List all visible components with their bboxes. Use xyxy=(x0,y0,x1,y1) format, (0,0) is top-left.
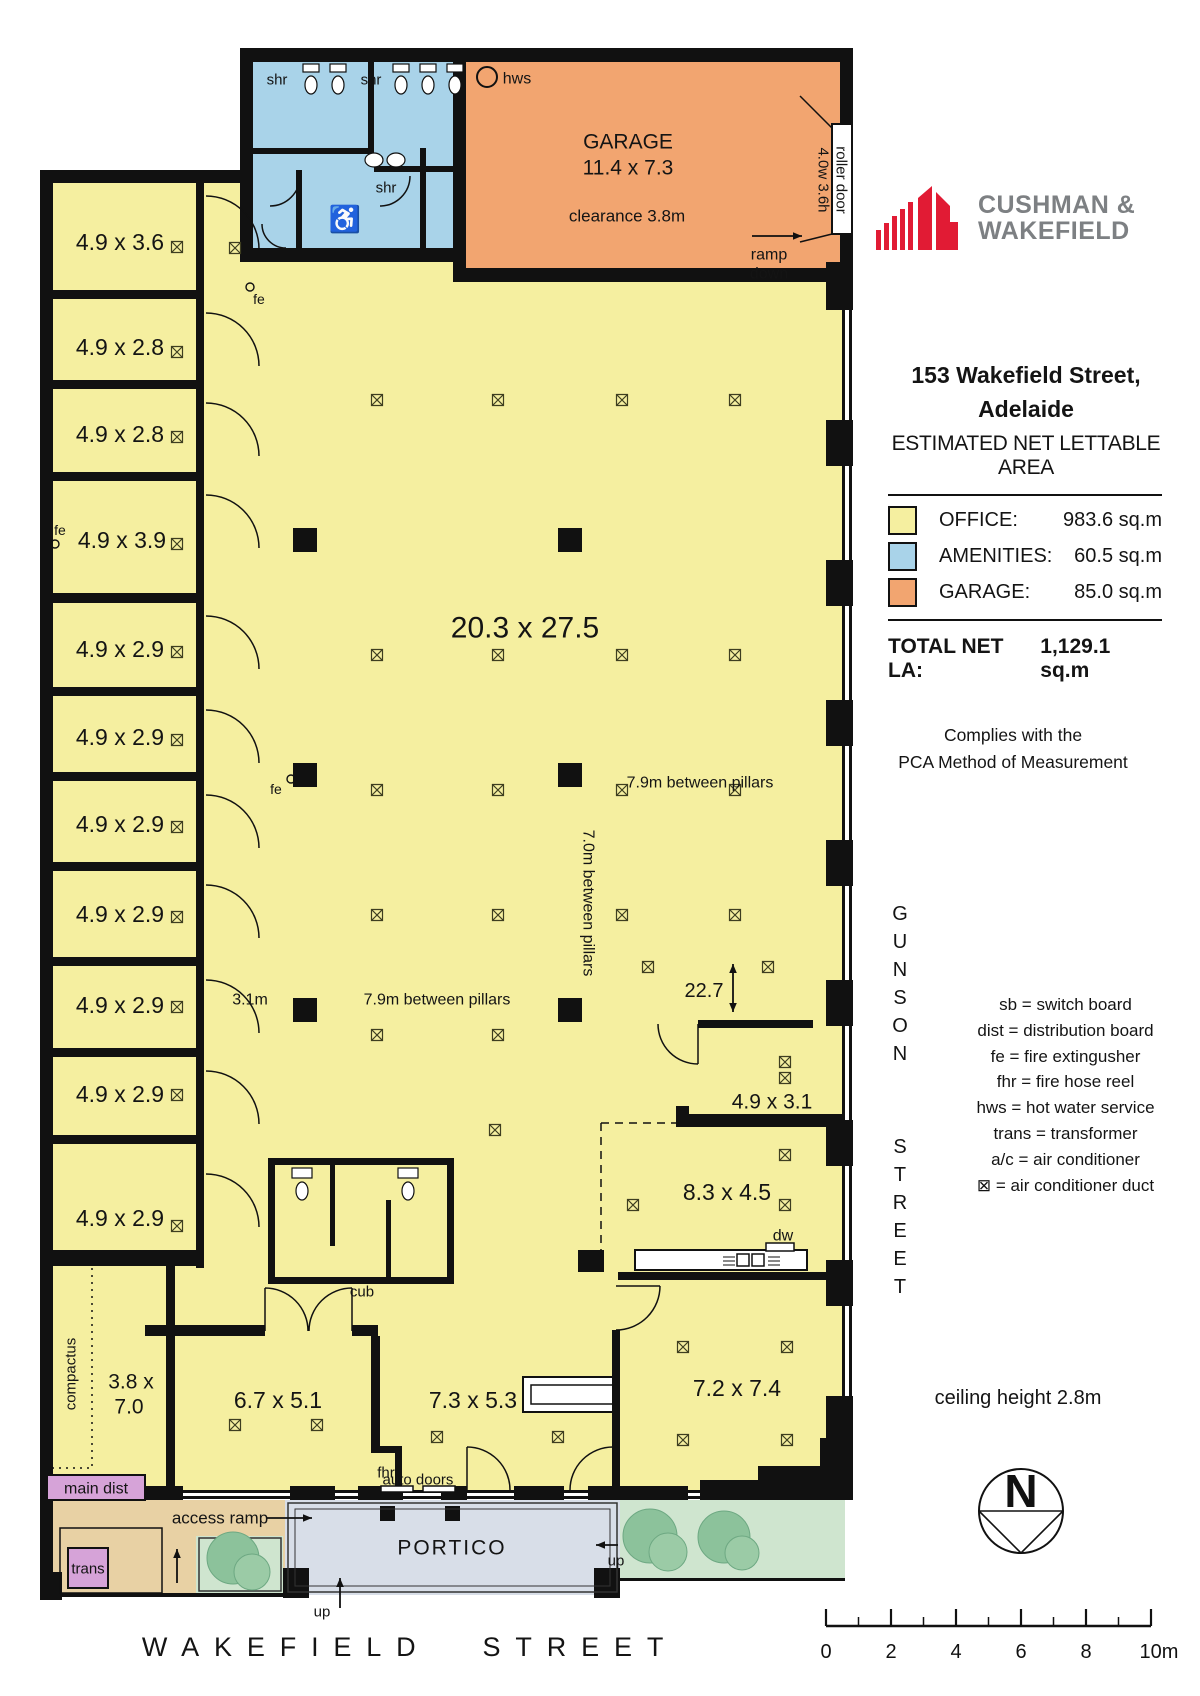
plan-label: 7.9m between pillars xyxy=(364,992,511,1009)
plan-wall xyxy=(514,1486,564,1500)
plan-area xyxy=(635,1250,807,1270)
legend-rule-bottom xyxy=(888,619,1162,621)
legend-label: OFFICE: xyxy=(939,509,1063,532)
plan-label: 4.9 x 2.9 xyxy=(76,636,164,662)
plan-wall xyxy=(698,1020,813,1028)
plan-wall xyxy=(758,1466,845,1500)
legend-row-office: OFFICE:983.6 sq.m xyxy=(888,506,1162,535)
scale-bar-mark: 10m xyxy=(1140,1641,1178,1663)
pillar xyxy=(293,763,317,787)
street-label-gunson-street: STREET xyxy=(877,1136,911,1304)
plan-wall xyxy=(826,1260,853,1306)
abbreviations-list: sb = switch boarddist = distribution boa… xyxy=(938,992,1193,1198)
plan-label: dw xyxy=(773,1228,794,1245)
compliance-note: Complies with the PCA Method of Measurem… xyxy=(888,722,1138,776)
plan-label: 7.3 x 5.3 xyxy=(429,1387,517,1413)
plan-wall xyxy=(40,472,204,481)
plan-wall xyxy=(330,1158,335,1246)
fixture-icon xyxy=(395,76,407,94)
plan-wall xyxy=(386,1200,391,1284)
plan-wall xyxy=(453,268,853,282)
legend-swatch xyxy=(888,506,917,535)
plan-area xyxy=(523,1377,613,1412)
plan-label: 3.8 x xyxy=(108,1371,154,1394)
plan-wall xyxy=(40,1135,204,1144)
plan-label: 8.3 x 4.5 xyxy=(683,1179,771,1205)
total-value: 1,129.1 sq.m xyxy=(1040,635,1162,683)
floorplan-svg: shrshrshrhwsGARAGE11.4 x 7.3clearance 3.… xyxy=(0,0,1200,1696)
plan-wall xyxy=(594,1568,620,1598)
plan-wall xyxy=(826,1120,853,1166)
subtitle: ESTIMATED NET LETTABLE AREA xyxy=(886,432,1166,480)
scale-bar-mark: 2 xyxy=(885,1641,896,1663)
abbreviation-item: fhr = fire hose reel xyxy=(938,1069,1193,1095)
plan-wall xyxy=(240,248,466,262)
plan-wall xyxy=(40,290,204,299)
total-label: TOTAL NET LA: xyxy=(888,635,1040,683)
plan-label: compactus xyxy=(63,1338,80,1411)
tree-icon xyxy=(725,1536,759,1570)
plan-label: fe xyxy=(253,291,265,307)
plan-wall xyxy=(420,148,426,248)
plan-area xyxy=(398,1168,418,1178)
plan-area xyxy=(447,64,463,72)
abbreviation-item: dist = distribution board xyxy=(938,1018,1193,1044)
plan-wall xyxy=(40,1048,204,1057)
pillar xyxy=(558,763,582,787)
plan-label: 11.4 x 7.3 xyxy=(583,157,674,180)
plan-wall xyxy=(447,1158,454,1284)
scale-bar-mark: 8 xyxy=(1080,1641,1091,1663)
plan-label: main dist xyxy=(64,1481,129,1498)
plan-wall xyxy=(40,862,204,871)
plan-label: fe xyxy=(54,522,66,538)
plan-label: GARAGE xyxy=(583,131,673,154)
plan-area xyxy=(737,1254,749,1266)
brand-name: CUSHMAN & WAKEFIELD xyxy=(978,192,1135,244)
fixture-icon xyxy=(332,76,344,94)
north-letter: N xyxy=(1004,1465,1037,1517)
legend-row-amenities: AMENITIES:60.5 sq.m xyxy=(888,542,1162,571)
plan-wall xyxy=(676,1106,689,1127)
plan-label: auto doors xyxy=(383,1472,454,1489)
plan-area xyxy=(420,64,436,72)
plan-wall xyxy=(268,1158,454,1165)
plan-label: 20.3 x 27.5 xyxy=(451,612,599,645)
abbreviation-item: a/c = air conditioner xyxy=(938,1147,1193,1173)
scale-bar-mark: 0 xyxy=(820,1641,831,1663)
abbreviation-item: trans = transformer xyxy=(938,1121,1193,1147)
scale-bar-mark: 4 xyxy=(950,1641,961,1663)
plan-label: ♿ xyxy=(329,204,361,234)
brand-name-line1: CUSHMAN & xyxy=(978,192,1135,218)
plan-wall xyxy=(40,593,204,603)
plan-wall xyxy=(620,1578,845,1581)
legend-rows: OFFICE:983.6 sq.mAMENITIES:60.5 sq.mGARA… xyxy=(888,506,1162,607)
legend-swatch xyxy=(888,578,917,607)
plan-label: 22.7 xyxy=(685,980,724,1002)
title-block: 153 Wakefield Street, Adelaide ESTIMATED… xyxy=(886,358,1166,480)
plan-wall xyxy=(445,1506,460,1521)
tree-icon xyxy=(234,1554,270,1590)
plan-wall xyxy=(145,1325,265,1336)
plan-label: shr xyxy=(376,180,397,197)
street-label-gunson: GUNSON xyxy=(877,903,911,1071)
fixture-icon xyxy=(365,153,383,167)
brand-logo-icon xyxy=(876,186,964,250)
plan-label: 4.9 x 3.1 xyxy=(732,1091,813,1114)
legend-value: 983.6 sq.m xyxy=(1063,509,1162,532)
plan-wall xyxy=(826,840,853,886)
plan-wall xyxy=(578,1250,604,1272)
total-row: TOTAL NET LA: 1,129.1 sq.m xyxy=(888,635,1162,683)
plan-wall xyxy=(826,560,853,606)
plan-label: clearance 3.8m xyxy=(569,207,685,226)
plan-label: down xyxy=(750,266,788,283)
plan-wall xyxy=(826,420,853,466)
plan-wall xyxy=(40,687,204,696)
plan-wall xyxy=(196,182,204,1268)
plan-label: 4.9 x 2.9 xyxy=(76,811,164,837)
plan-wall xyxy=(676,1114,845,1127)
legend-rule-top xyxy=(888,494,1162,496)
plan-label: 4.0w 3.6h xyxy=(815,147,832,212)
plan-label: 7.9m between pillars xyxy=(627,775,774,792)
plan-label: 3.1m xyxy=(232,992,268,1009)
abbreviation-item: sb = switch board xyxy=(938,992,1193,1018)
plan-label: trans xyxy=(71,1561,104,1578)
plan-label: up xyxy=(608,1553,625,1570)
page: shrshrshrhwsGARAGE11.4 x 7.3clearance 3.… xyxy=(0,0,1200,1696)
north-arrow-icon: N xyxy=(975,1465,1067,1557)
plan-label: 7.0 xyxy=(114,1396,143,1419)
legend-swatch xyxy=(888,542,917,571)
plan-label: 7.0m between pillars xyxy=(580,830,597,977)
scale-bar: 0246810m xyxy=(818,1596,1178,1681)
plan-label: 4.9 x 2.9 xyxy=(76,1081,164,1107)
plan-wall xyxy=(588,1486,688,1500)
plan-label: cub xyxy=(350,1284,374,1301)
compliance-line1: Complies with the xyxy=(888,722,1138,749)
plan-wall xyxy=(145,1486,183,1500)
plan-wall xyxy=(700,1480,762,1500)
plan-label: 4.9 x 2.9 xyxy=(76,724,164,750)
plan-wall xyxy=(826,262,853,310)
legend-label: AMENITIES: xyxy=(939,545,1074,568)
fixture-icon xyxy=(387,153,405,167)
legend-value: 60.5 sq.m xyxy=(1074,545,1162,568)
plan-wall xyxy=(618,1272,845,1280)
pillar xyxy=(293,998,317,1022)
plan-wall xyxy=(290,1486,335,1500)
area-legend: OFFICE:983.6 sq.mAMENITIES:60.5 sq.mGARA… xyxy=(888,494,1162,683)
fixture-icon xyxy=(296,1182,308,1200)
compliance-line2: PCA Method of Measurement xyxy=(888,749,1138,776)
plan-area xyxy=(752,1254,764,1266)
plan-area xyxy=(303,64,319,72)
plan-label: roller door xyxy=(833,146,850,214)
plan-wall xyxy=(826,1396,853,1442)
pillar xyxy=(558,998,582,1022)
plan-wall xyxy=(826,980,853,1026)
plan-label: 7.2 x 7.4 xyxy=(693,1375,781,1401)
plan-label: 4.9 x 3.6 xyxy=(76,229,164,255)
plan-label: 4.9 x 2.8 xyxy=(76,334,164,360)
plan-wall xyxy=(826,700,853,746)
plan-area xyxy=(393,64,409,72)
plan-wall xyxy=(252,148,368,154)
abbreviation-item: ⊠ = air conditioner duct xyxy=(938,1173,1193,1199)
scale-bar-svg: 0246810m xyxy=(818,1596,1178,1676)
abbreviation-item: fe = fire extingusher xyxy=(938,1044,1193,1070)
pillar xyxy=(293,528,317,552)
ceiling-note: ceiling height 2.8m xyxy=(898,1387,1138,1410)
plan-wall xyxy=(240,48,253,262)
plan-wall xyxy=(352,1325,378,1336)
address-line2: Adelaide xyxy=(886,392,1166,426)
plan-label: access ramp xyxy=(172,1509,268,1528)
fixture-icon xyxy=(449,76,461,94)
legend-row-garage: GARAGE:85.0 sq.m xyxy=(888,578,1162,607)
tree-icon xyxy=(649,1533,687,1571)
plan-wall xyxy=(268,1158,275,1284)
plan-label: 4.9 x 2.9 xyxy=(76,901,164,927)
plan-label: PORTICO xyxy=(397,1537,506,1560)
pillar xyxy=(558,528,582,552)
plan-wall xyxy=(40,380,204,389)
plan-wall xyxy=(166,1262,175,1492)
brand-logo: CUSHMAN & WAKEFIELD xyxy=(876,186,1135,250)
fixture-icon xyxy=(422,76,434,94)
plan-label: hws xyxy=(503,71,531,88)
legend-value: 85.0 sq.m xyxy=(1074,581,1162,604)
plan-wall xyxy=(380,1506,395,1521)
abbreviation-item: hws = hot water service xyxy=(938,1095,1193,1121)
brand-name-line2: WAKEFIELD xyxy=(978,218,1135,244)
plan-label: shr xyxy=(361,72,382,89)
plan-label: 4.9 x 3.9 xyxy=(78,527,166,553)
plan-label: 4.9 x 2.8 xyxy=(76,421,164,447)
plan-wall xyxy=(40,1250,204,1266)
plan-wall xyxy=(840,62,853,126)
plan-wall xyxy=(40,772,204,781)
plan-wall xyxy=(40,957,204,966)
fixture-icon xyxy=(402,1182,414,1200)
north-arrow: N xyxy=(975,1465,1067,1562)
plan-wall xyxy=(240,48,853,62)
plan-label: 6.7 x 5.1 xyxy=(234,1387,322,1413)
plan-wall xyxy=(374,166,453,172)
plan-wall xyxy=(371,1336,380,1452)
legend-label: GARAGE: xyxy=(939,581,1074,604)
address-line1: 153 Wakefield Street, xyxy=(886,358,1166,392)
plan-area xyxy=(330,64,346,72)
plan-label: 4.9 x 2.9 xyxy=(76,992,164,1018)
plan-wall xyxy=(40,170,253,183)
street-label-wakefield: WAKEFIELD STREET xyxy=(110,1632,710,1663)
plan-label: fe xyxy=(270,781,282,797)
plan-label: up xyxy=(314,1604,331,1621)
plan-label: ramp xyxy=(751,247,788,264)
scale-bar-mark: 6 xyxy=(1015,1641,1026,1663)
plan-label: 4.9 x 2.9 xyxy=(76,1205,164,1231)
plan-area xyxy=(292,1168,312,1178)
fixture-icon xyxy=(305,76,317,94)
plan-label: shr xyxy=(267,72,288,89)
